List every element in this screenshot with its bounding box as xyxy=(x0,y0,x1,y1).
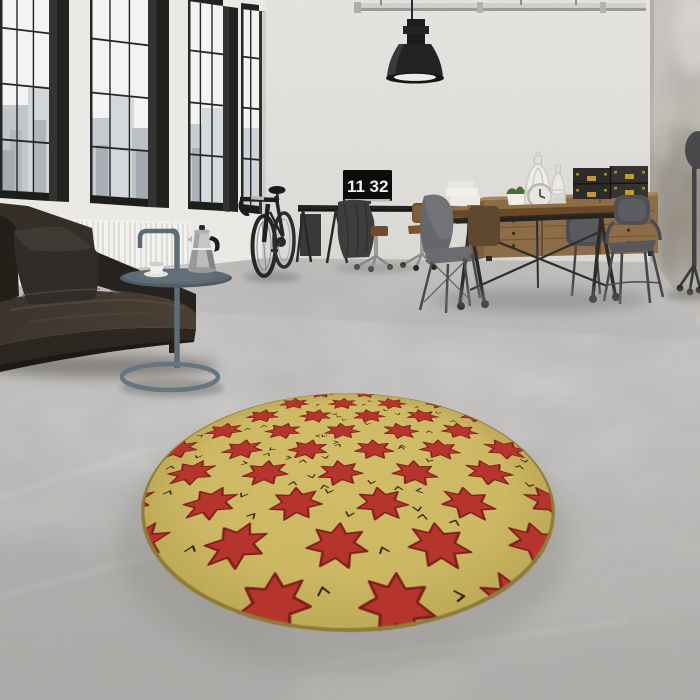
svg-text:11: 11 xyxy=(347,177,365,196)
svg-text:32: 32 xyxy=(370,177,389,196)
